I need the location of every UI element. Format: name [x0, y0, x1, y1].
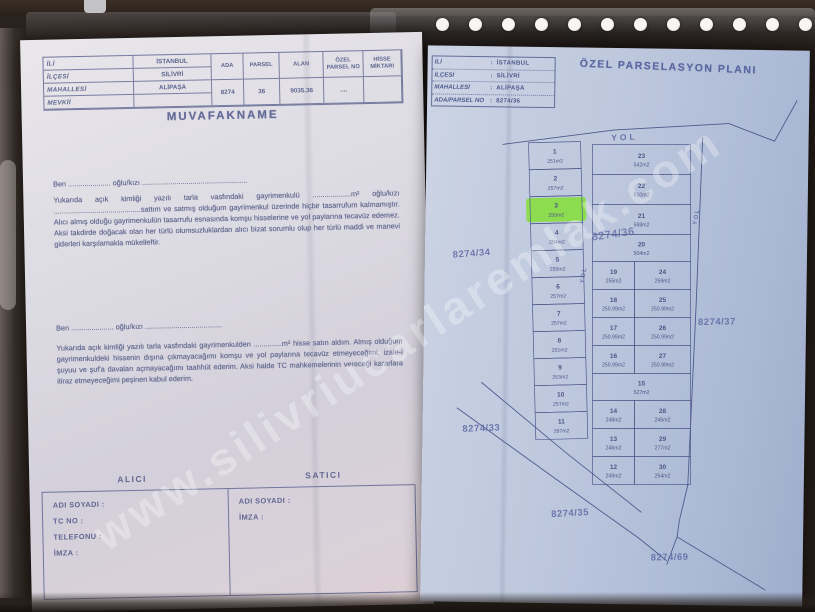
parcel-area: 251m2: [547, 158, 563, 164]
parcel-number: 27: [659, 353, 667, 360]
plan-info-row: ADA/PARSEL NO:8274/36: [432, 94, 554, 107]
parcel-area: 257m2: [550, 293, 566, 299]
signature-boxes: ADI SOYADI :TC NO :TELEFONU :İMZA : ADI …: [42, 484, 418, 600]
road-label-yol: YOL: [611, 132, 638, 143]
binder-hole: [502, 18, 515, 31]
binder-hole: [766, 18, 779, 31]
neighbor-parcel-label: 8274/35: [551, 507, 590, 520]
parcel-outline: [531, 249, 584, 277]
parcel-area: 248m2: [606, 418, 622, 424]
party-field-label: İMZA :: [239, 509, 415, 522]
plan-info-label: ADA/PARSEL NO: [434, 96, 490, 104]
parcel-number: 23: [638, 153, 646, 160]
parcel-number: 8: [558, 338, 562, 345]
neighbor-parcel-label: 8274/69: [651, 552, 689, 564]
neighbor-parcel-label: 8274/34: [452, 247, 491, 261]
parcel-area: 257m2: [548, 185, 564, 191]
declaration2-intro: Ben ..................... oğlu/kızı ....…: [56, 316, 402, 334]
binder-hole: [535, 18, 548, 31]
parcel-number: 29: [659, 436, 667, 443]
parcel-area: 510m2: [634, 192, 650, 198]
parcel-number: 4: [555, 230, 559, 237]
binder-hole: [634, 18, 647, 31]
buyer-header: ALICI: [117, 474, 147, 485]
declaration2-body: Yukarıda açık kimliği yazılı tarla vasfı…: [56, 336, 403, 387]
parcel-number: 26: [659, 325, 667, 332]
parcel-area: 250.99m2: [602, 335, 625, 341]
plan-info-label: İLİ: [435, 59, 491, 67]
property-info-table: İLİİLÇESİMAHALLESİMEVKİİİSTANBULSİLİVRİA…: [42, 49, 403, 111]
parcel-area: 527m2: [634, 390, 650, 396]
plan-info-value: SİLİVRİ: [496, 72, 552, 80]
parcel-number: 14: [610, 408, 618, 415]
parcel-number: 11: [558, 418, 565, 425]
parcel-number: 18: [610, 297, 618, 304]
cell-mevkii-value: [134, 93, 212, 108]
parcel-area: 246m2: [606, 446, 622, 452]
plastic-sleeve-highlight: [370, 8, 815, 50]
parcel-number: 22: [638, 183, 646, 190]
parcel-area: 267m2: [554, 428, 570, 434]
parcel-number: 21: [638, 213, 646, 220]
plan-info-table: İLİ:İSTANBULİLÇESİ:SİLİVRİMAHALLESİ:ALİP…: [431, 55, 556, 108]
plan-info-label: İLÇESİ: [434, 71, 490, 79]
binder-hole: [667, 18, 680, 31]
plastic-sleeve-highlight: [0, 160, 16, 310]
parcel-area: 259m2: [655, 279, 671, 285]
cell-ada-value: 8274: [212, 80, 245, 107]
parcel-number: 28: [659, 408, 667, 415]
cell-ozel-parsel-value: ....: [324, 77, 365, 104]
muvafakname-document: İLİİLÇESİMAHALLESİMEVKİİİSTANBULSİLİVRİA…: [20, 32, 434, 612]
parcel-number: 6: [556, 284, 560, 291]
parcel-area: 250.99m2: [602, 307, 625, 313]
parcel-area: 277m2: [655, 446, 671, 452]
party-field-label: İMZA :: [54, 545, 229, 558]
binder-hole: [799, 18, 812, 31]
binder-hole: [436, 18, 449, 31]
road-line: [729, 100, 798, 142]
cell-parsel-value: 36: [244, 79, 281, 106]
seller-signature-box: ADI SOYADI :İMZA :: [228, 485, 416, 595]
parcel-number: 10: [557, 391, 565, 398]
parcel-number: 30: [659, 464, 667, 471]
parcel-area: 250.99m2: [602, 363, 625, 369]
party-field-label: ADI SOYADI :: [239, 493, 415, 506]
road-line: [676, 537, 766, 590]
party-field-label: TELEFONU :: [53, 529, 228, 542]
parcel-number: 24: [659, 269, 667, 276]
road-line: [677, 137, 703, 537]
parcel-area: 250m2: [548, 212, 564, 218]
parcel-outline: [531, 222, 584, 250]
parcel-area: 250.99m2: [651, 307, 674, 313]
parselasyon-plan-document: YOL1251m22257m23250m24254m25250m26257m27…: [420, 45, 810, 606]
parcel-number: 20: [638, 242, 646, 249]
parcel-number: 12: [610, 464, 618, 471]
parcel-area: 249m2: [606, 474, 622, 480]
parcel-number: 19: [610, 269, 618, 276]
binder-hole: [700, 18, 713, 31]
party-field-label: ADI SOYADI :: [53, 497, 228, 510]
binder-hole: [601, 18, 614, 31]
declaration1-intro: Ben ..................... oğlu/kızı ....…: [53, 172, 399, 190]
parcel-area: 250.99m2: [651, 335, 674, 341]
parcel-area: 257m2: [551, 320, 567, 326]
cell-alan-header: ALAN: [279, 52, 324, 79]
parcel-area: 246m2: [655, 418, 671, 424]
parcel-number: 16: [610, 353, 618, 360]
parcel-number: 13: [610, 436, 618, 443]
parcel-area: 255m2: [606, 279, 622, 285]
binder-hole: [469, 18, 482, 31]
plan-info-value: İSTANBUL: [497, 60, 553, 68]
main-parcel-block: 23542m222510m221598m220504m219255m224259…: [593, 144, 691, 484]
parcel-number: 15: [638, 381, 646, 388]
left-parcel-column: 1251m22257m23250m24254m25250m26257m27257…: [525, 141, 592, 439]
parcel-area: 251m2: [552, 347, 568, 353]
cell-alan-value: 9035.36: [280, 78, 325, 105]
plan-info-value: 8274/36: [496, 97, 552, 105]
parcel-number: 1: [553, 149, 557, 156]
party-field-label: TC NO :: [53, 513, 228, 526]
parcel-area: 250.99m2: [651, 363, 674, 369]
seller-header: SATICI: [305, 470, 341, 481]
cell-hisse-value: [364, 76, 403, 103]
neighbor-parcel-label: 8274/37: [698, 316, 736, 328]
neighbor-parcel-label: 8274/33: [462, 422, 500, 434]
parcel-area: 254m2: [549, 239, 565, 245]
parcel-number: 5: [556, 257, 560, 264]
parcel-area: 253m2: [552, 374, 568, 380]
parcel-plan-map: YOL1251m22257m23250m24254m25250m26257m27…: [420, 45, 810, 606]
parcel-outline: [535, 411, 588, 439]
sleeve-tab: [84, 0, 106, 13]
parcel-number: 9: [558, 365, 562, 372]
parcel-area: 504m2: [634, 251, 650, 257]
plan-ada-parsel-label: 8274/36: [591, 226, 636, 244]
cell-hisse-header: HİSSE MİKTARI: [363, 50, 402, 77]
declaration1-body: Yukarıda açık kimliği yazılı tarla vasfı…: [53, 188, 400, 250]
parcel-number: 3: [554, 203, 558, 210]
parcel-area: 257m2: [553, 401, 569, 407]
photo-scene: İLİİLÇESİMAHALLESİMEVKİİİSTANBULSİLİVRİA…: [0, 0, 815, 612]
plan-info-value: ALİPAŞA: [496, 85, 552, 93]
road-label-yol-vertical: YOL: [692, 208, 701, 226]
parcel-number: 7: [557, 311, 561, 318]
parcel-area: 250m2: [550, 266, 566, 272]
sleeve-bottom-shadow: [0, 592, 815, 612]
binder-hole: [733, 18, 746, 31]
parcel-number: 2: [554, 176, 558, 183]
buyer-signature-box: ADI SOYADI :TC NO :TELEFONU :İMZA :: [43, 489, 231, 599]
parcel-area: 598m2: [634, 222, 650, 228]
cell-parsel-header: PARSEL: [243, 53, 280, 80]
plan-info-label: MAHALLESİ: [434, 84, 490, 92]
parcel-number: 25: [659, 297, 667, 304]
binder-hole: [568, 18, 581, 31]
road-label-yol-vertical: YOL: [580, 266, 589, 284]
cell-ada-header: ADA: [211, 54, 244, 81]
parcel-area: 542m2: [634, 162, 650, 168]
cell-ozel-parsel-header: ÖZEL PARSEL NO: [323, 51, 364, 78]
parcel-number: 17: [610, 325, 618, 332]
parcel-area: 254m2: [655, 474, 671, 480]
cell-mevkii-label: MEVKİİ: [44, 95, 134, 110]
